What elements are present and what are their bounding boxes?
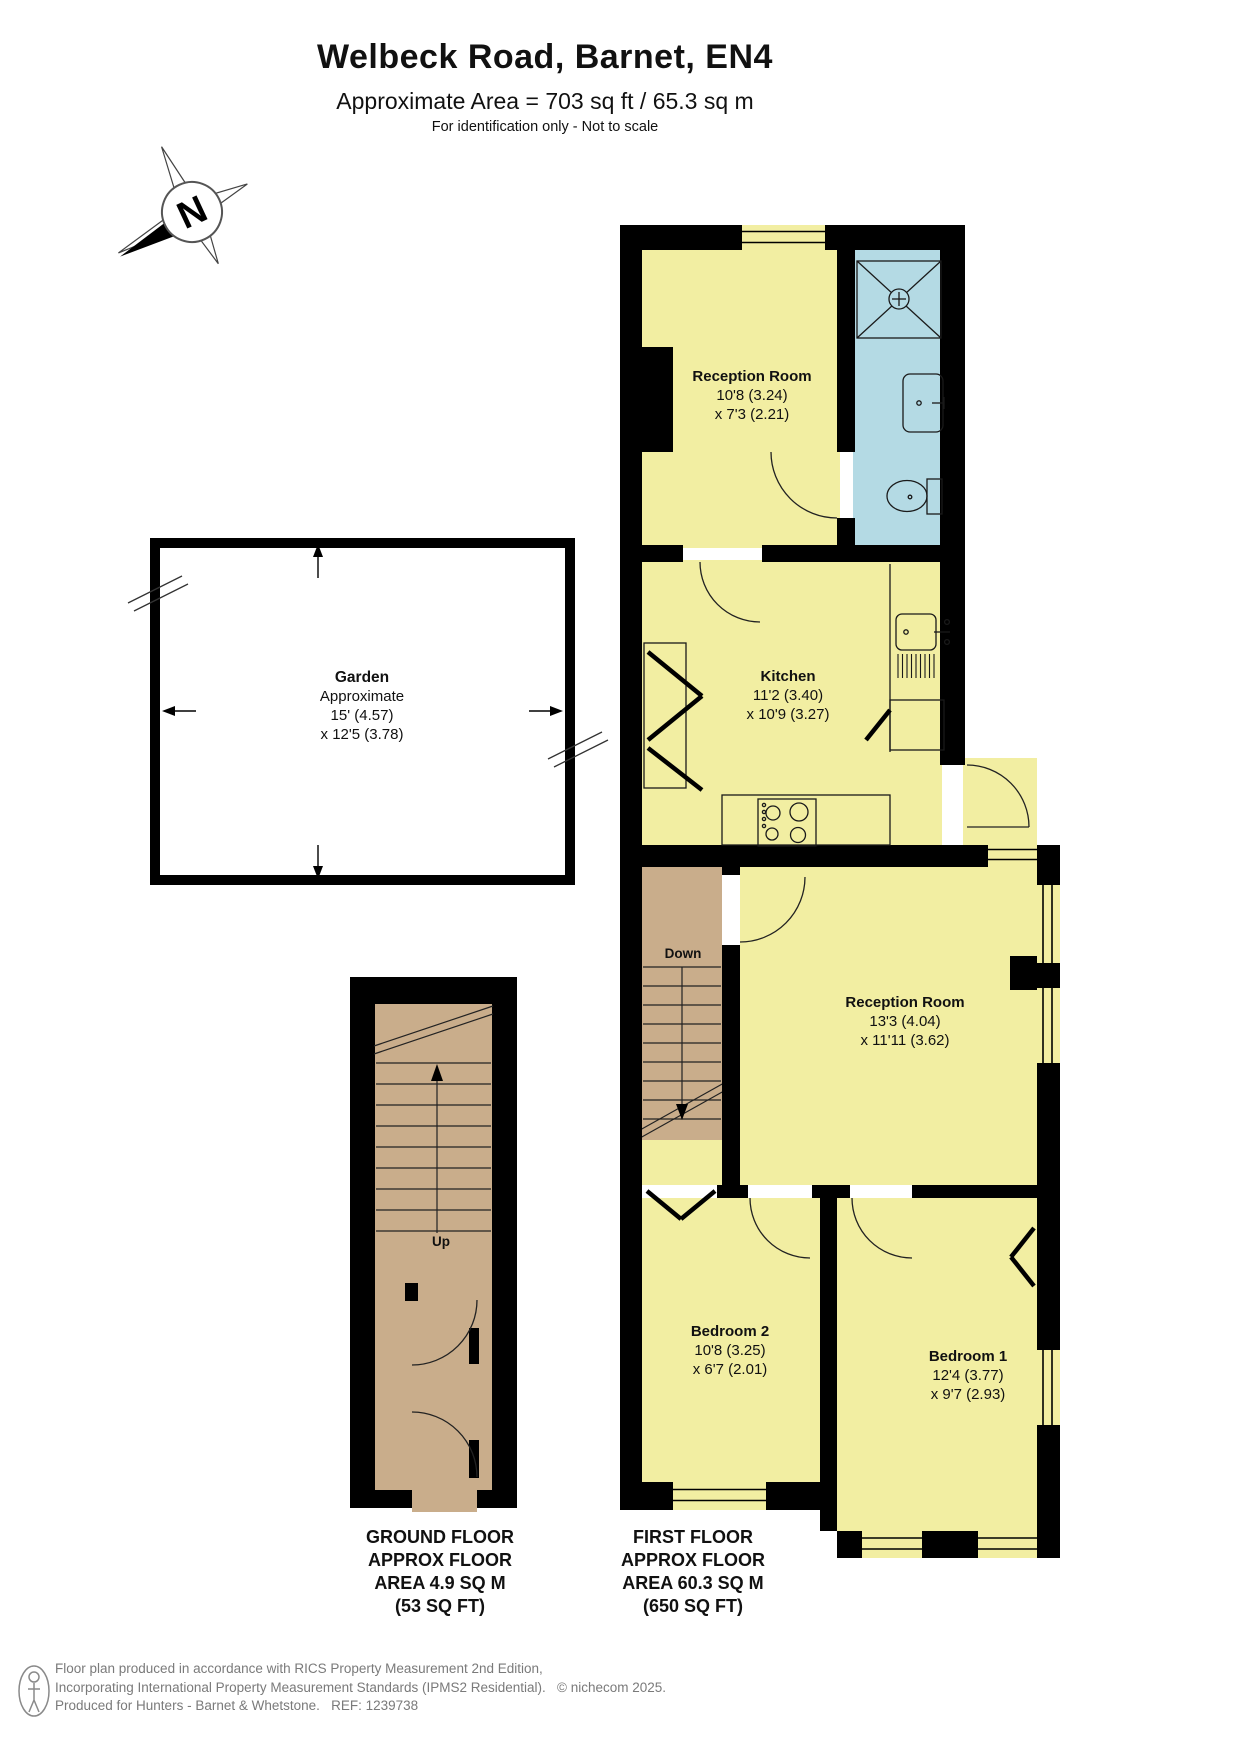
room-label-bedroom-2: Bedroom 2 10'8 (3.25) x 6'7 (2.01) <box>691 1322 769 1379</box>
reception-1-dim-1: 10'8 (3.24) <box>692 386 811 405</box>
page-title: Welbeck Road, Barnet, EN4 <box>0 38 1090 77</box>
first-floor-line-3: AREA 60.3 SQ M <box>621 1572 765 1595</box>
garden-approximate: Approximate <box>320 687 404 706</box>
kitchen-dim-2: x 10'9 (3.27) <box>747 705 830 724</box>
reception-2-dim-2: x 11'11 (3.62) <box>845 1031 964 1050</box>
ground-floor-line-2: APPROX FLOOR <box>366 1549 514 1572</box>
footer-line-1: Floor plan produced in accordance with R… <box>55 1660 666 1679</box>
ground-floor-line-1: GROUND FLOOR <box>366 1526 514 1549</box>
bedroom-1-name: Bedroom 1 <box>929 1347 1007 1366</box>
kitchen-name: Kitchen <box>747 667 830 686</box>
reception-1-name: Reception Room <box>692 367 811 386</box>
first-floor-line-1: FIRST FLOOR <box>621 1526 765 1549</box>
first-floor-line-2: APPROX FLOOR <box>621 1549 765 1572</box>
kitchen-dim-1: 11'2 (3.40) <box>747 686 830 705</box>
room-label-reception-2: Reception Room 13'3 (4.04) x 11'11 (3.62… <box>845 993 964 1050</box>
bedroom-2-name: Bedroom 2 <box>691 1322 769 1341</box>
floorplan-graphic: N <box>0 0 1241 1755</box>
bedroom-1-dim-2: x 9'7 (2.93) <box>929 1385 1007 1404</box>
approximate-area: Approximate Area = 703 sq ft / 65.3 sq m <box>0 88 1090 115</box>
garden-dim-1: 15' (4.57) <box>320 706 404 725</box>
footer-line-2: Incorporating International Property Mea… <box>55 1679 666 1698</box>
reception-2-name: Reception Room <box>845 993 964 1012</box>
garden-label: Garden Approximate 15' (4.57) x 12'5 (3.… <box>320 668 404 744</box>
reception-2-dim-1: 13'3 (4.04) <box>845 1012 964 1031</box>
bedroom-2-dim-2: x 6'7 (2.01) <box>691 1360 769 1379</box>
disclaimer-text: For identification only - Not to scale <box>0 119 1090 135</box>
person-icon <box>19 1666 49 1716</box>
compass-north-arrow: N <box>85 121 272 301</box>
first-floor-label: FIRST FLOOR APPROX FLOOR AREA 60.3 SQ M … <box>621 1526 765 1618</box>
ground-floor-line-3: AREA 4.9 SQ M <box>366 1572 514 1595</box>
stairs-up-label: Up <box>432 1234 450 1249</box>
ground-floor-line-4: (53 SQ FT) <box>366 1595 514 1618</box>
garden-dim-2: x 12'5 (3.78) <box>320 725 404 744</box>
garden-name: Garden <box>320 668 404 687</box>
room-label-reception-1: Reception Room 10'8 (3.24) x 7'3 (2.21) <box>692 367 811 424</box>
room-label-kitchen: Kitchen 11'2 (3.40) x 10'9 (3.27) <box>747 667 830 724</box>
ground-floor-label: GROUND FLOOR APPROX FLOOR AREA 4.9 SQ M … <box>366 1526 514 1618</box>
reception-1-dim-2: x 7'3 (2.21) <box>692 405 811 424</box>
stairs-down-label: Down <box>665 946 702 961</box>
first-floor-line-4: (650 SQ FT) <box>621 1595 765 1618</box>
room-label-bedroom-1: Bedroom 1 12'4 (3.77) x 9'7 (2.93) <box>929 1347 1007 1404</box>
floorplan-page: N <box>0 0 1241 1755</box>
footer-line-3: Produced for Hunters - Barnet & Whetston… <box>55 1697 666 1716</box>
footer-disclaimer: Floor plan produced in accordance with R… <box>55 1660 666 1716</box>
bedroom-1-dim-1: 12'4 (3.77) <box>929 1366 1007 1385</box>
bedroom-2-dim-1: 10'8 (3.25) <box>691 1341 769 1360</box>
